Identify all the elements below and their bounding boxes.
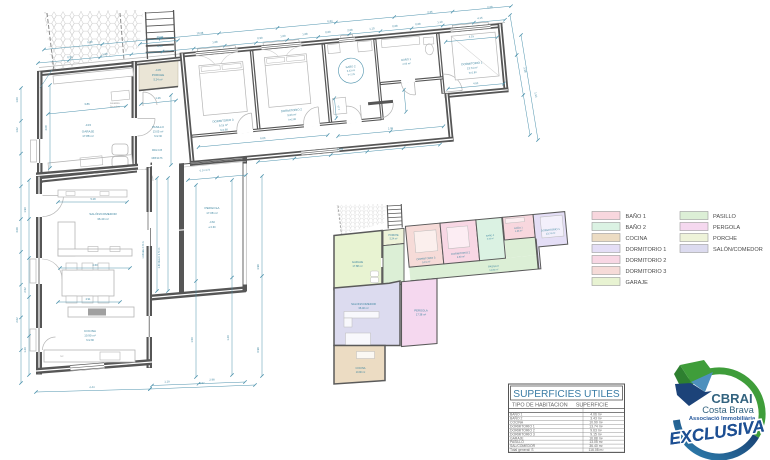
- svg-text:DORMITORIO 2: DORMITORIO 2: [626, 258, 667, 264]
- svg-text:10.38: 10.38: [196, 31, 204, 36]
- svg-text:5.48: 5.48: [87, 40, 93, 45]
- svg-text:0.68: 0.68: [392, 24, 398, 29]
- svg-text:COCINA: COCINA: [84, 329, 97, 333]
- svg-text:3.98: 3.98: [256, 264, 260, 270]
- svg-text:2.98: 2.98: [388, 126, 394, 131]
- svg-text:SALON/COMEDOR: SALON/COMEDOR: [351, 302, 376, 306]
- svg-text:1.20: 1.20: [226, 335, 230, 341]
- svg-text:1.68: 1.68: [102, 52, 108, 57]
- svg-text:BAÑO 1: BAÑO 1: [626, 213, 647, 220]
- svg-text:6.87: 6.87: [199, 381, 205, 385]
- svg-text:17.38 m²: 17.38 m²: [416, 313, 426, 317]
- svg-text:4.48: 4.48: [156, 36, 162, 41]
- svg-text:1.20: 1.20: [23, 347, 27, 353]
- svg-text:Lavadora: Lavadora: [110, 102, 120, 105]
- svg-text:PORCHE: PORCHE: [152, 73, 164, 77]
- svg-text:h=2.30: h=2.30: [154, 135, 162, 138]
- svg-text:PORCHE: PORCHE: [713, 236, 737, 242]
- svg-text:36.40 m²: 36.40 m²: [97, 217, 108, 221]
- svg-text:1.02: 1.02: [15, 127, 19, 133]
- svg-text:10.90 m²: 10.90 m²: [356, 371, 366, 374]
- svg-text:0.68: 0.68: [487, 5, 493, 10]
- svg-text:h=2.80: h=2.80: [86, 339, 94, 342]
- svg-text:1.90: 1.90: [23, 207, 27, 213]
- svg-text:-0.15: -0.15: [85, 123, 92, 127]
- svg-text:1.26: 1.26: [155, 96, 161, 100]
- svg-text:4.48: 4.48: [157, 44, 163, 49]
- svg-text:1.10: 1.10: [369, 26, 375, 31]
- svg-text:GARAJE: GARAJE: [82, 130, 94, 134]
- svg-text:PERGOLA: PERGOLA: [713, 225, 740, 231]
- svg-text:0.60: 0.60: [325, 30, 331, 35]
- svg-text:13.05: 13.05: [336, 147, 343, 152]
- svg-text:2.91: 2.91: [86, 298, 91, 301]
- svg-text:0.90: 0.90: [257, 36, 263, 41]
- svg-text:0.94: 0.94: [67, 55, 73, 60]
- svg-text:1.94 tabu 2.70 m: 1.94 tabu 2.70 m: [142, 241, 145, 258]
- svg-text:17.88 m²: 17.88 m²: [352, 264, 362, 268]
- svg-text:BAÑO 2: BAÑO 2: [626, 224, 647, 231]
- svg-text:Total general: S: Total general: S: [510, 448, 534, 452]
- svg-text:SALÓN/COMEDOR: SALÓN/COMEDOR: [89, 211, 117, 216]
- svg-text:4.44: 4.44: [89, 385, 95, 389]
- svg-text:1.80 libre h 2.70 m: 1.80 libre h 2.70 m: [158, 248, 161, 269]
- svg-text:1.00: 1.00: [15, 97, 19, 103]
- svg-text:2.98: 2.98: [209, 377, 215, 381]
- svg-text:0.98: 0.98: [256, 347, 260, 353]
- svg-text:DORMITORIO 1: DORMITORIO 1: [626, 247, 667, 253]
- svg-text:PASILLO: PASILLO: [152, 125, 165, 129]
- svg-text:2.35: 2.35: [427, 10, 433, 15]
- svg-text:6.03: 6.03: [260, 136, 266, 141]
- svg-text:1.50: 1.50: [190, 337, 194, 343]
- svg-text:3.86: 3.86: [84, 102, 90, 106]
- svg-text:6.24: 6.24: [327, 19, 333, 24]
- svg-text:4.90: 4.90: [473, 81, 479, 86]
- svg-text:4.08: 4.08: [44, 125, 48, 131]
- svg-text:0.68: 0.68: [415, 22, 421, 27]
- svg-text:2.52: 2.52: [23, 287, 27, 293]
- svg-text:SUPERFICIES UTILES: SUPERFICIES UTILES: [513, 389, 620, 400]
- svg-text:DORMITORIO 3: DORMITORIO 3: [626, 269, 667, 275]
- svg-text:Costa Brava: Costa Brava: [702, 404, 754, 415]
- svg-text:COCINA: COCINA: [355, 366, 365, 370]
- svg-text:1.68: 1.68: [212, 40, 218, 45]
- svg-text:-0.05: -0.05: [155, 69, 161, 72]
- svg-text:MAS 0.05: MAS 0.05: [152, 149, 163, 152]
- svg-text:1.10: 1.10: [437, 20, 443, 25]
- svg-text:PORCHE: PORCHE: [388, 234, 399, 237]
- svg-text:⌀ 0.60: ⌀ 0.60: [208, 226, 216, 229]
- svg-text:M05.90.76: M05.90.76: [152, 158, 164, 160]
- svg-text:PERGOLA: PERGOLA: [205, 206, 221, 210]
- svg-text:5.24 m²: 5.24 m²: [153, 78, 162, 82]
- svg-text:GARAJE: GARAJE: [626, 280, 649, 286]
- svg-text:SUPERFICIE: SUPERFICIE: [576, 403, 609, 409]
- svg-text:17.88 m²: 17.88 m²: [82, 134, 93, 138]
- svg-text:116.08 m²: 116.08 m²: [588, 448, 604, 452]
- svg-text:1.68: 1.68: [302, 32, 308, 37]
- svg-text:COCINA: COCINA: [626, 236, 648, 242]
- svg-text:-0.60: -0.60: [209, 221, 215, 224]
- svg-text:1.19: 1.19: [164, 379, 170, 383]
- svg-text:4.15: 4.15: [469, 34, 475, 39]
- svg-text:1.00: 1.00: [280, 34, 286, 39]
- svg-text:36.40 m²: 36.40 m²: [358, 306, 368, 310]
- svg-text:2.68: 2.68: [347, 28, 353, 33]
- svg-text:5.28: 5.28: [90, 197, 96, 201]
- svg-text:PASILLO: PASILLO: [713, 214, 737, 220]
- svg-text:PERGOLA: PERGOLA: [414, 309, 428, 313]
- svg-text:4.60: 4.60: [92, 263, 98, 267]
- svg-text:13.05 m²: 13.05 m²: [153, 130, 164, 134]
- svg-text:4.15: 4.15: [477, 16, 483, 21]
- svg-text:SALÓN/COMEDOR: SALÓN/COMEDOR: [713, 246, 763, 253]
- svg-text:GARAJE: GARAJE: [352, 260, 363, 264]
- svg-text:17.08 m²: 17.08 m²: [206, 211, 217, 215]
- svg-text:10.90 m²: 10.90 m²: [84, 334, 95, 338]
- svg-text:4.08: 4.08: [15, 227, 19, 233]
- svg-text:2.02: 2.02: [15, 317, 19, 323]
- svg-text:TIPO DE HABITACION: TIPO DE HABITACION: [512, 403, 568, 409]
